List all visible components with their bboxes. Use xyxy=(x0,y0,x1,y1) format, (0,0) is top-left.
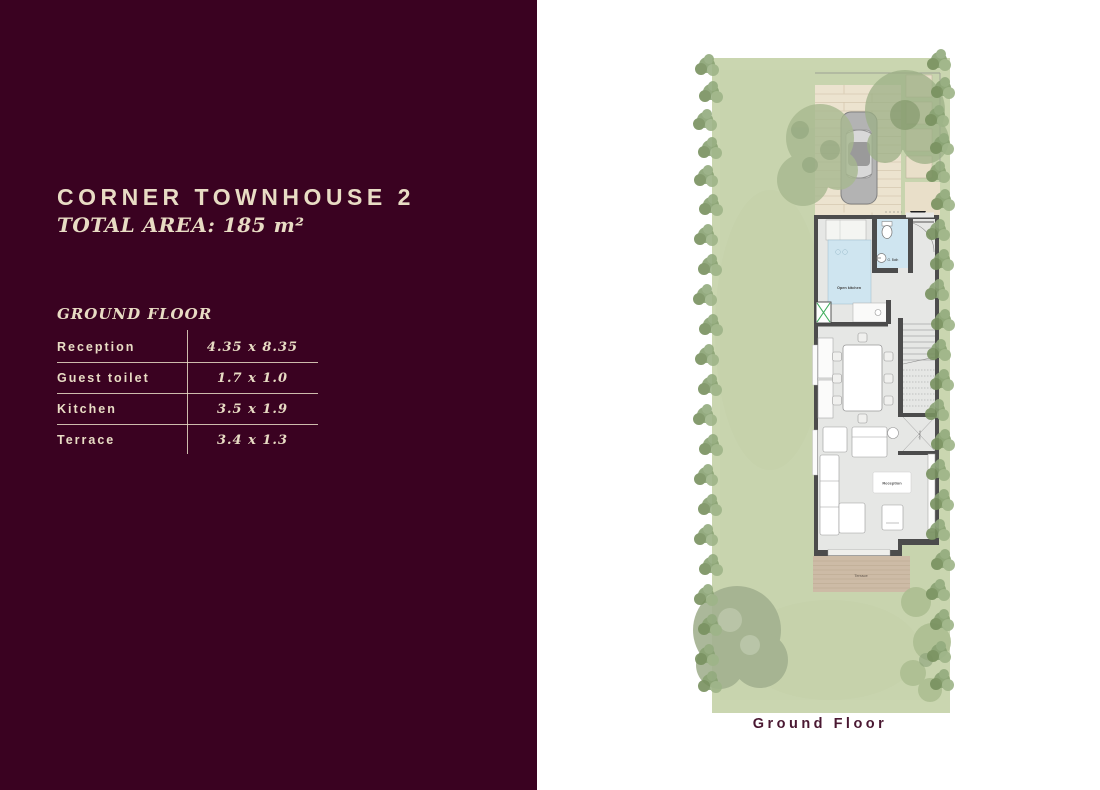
table-divider xyxy=(187,330,188,454)
floor-plan: G. Bath Open kitchen xyxy=(680,30,960,770)
room-label: Guest toilet xyxy=(57,371,187,385)
armchair xyxy=(823,427,847,452)
terrace-deck: Terrace xyxy=(813,556,910,592)
window xyxy=(813,430,818,475)
reception-label: Reception xyxy=(882,481,902,486)
window xyxy=(813,345,818,385)
plan-caption: Ground Floor xyxy=(680,716,960,732)
storage-label: Storage xyxy=(918,430,922,440)
brochure-page: CORNER TOWNHOUSE 2 TOTAL AREA: 185 m² GR… xyxy=(0,0,1100,790)
guest-bath-label: G. Bath xyxy=(888,258,899,262)
l-sofa xyxy=(820,455,839,535)
room-dims: 1.7 x 1.0 xyxy=(187,371,318,386)
unit-title: CORNER TOWNHOUSE 2 xyxy=(57,184,415,211)
terrace-label: Terrace xyxy=(854,573,868,578)
room-dims: 3.4 x 1.3 xyxy=(187,433,318,448)
room-dims: 4.35 x 8.35 xyxy=(187,340,318,355)
room-label: Kitchen xyxy=(57,402,187,416)
side-table xyxy=(888,428,899,439)
guest-toilet-room: G. Bath xyxy=(872,219,913,273)
dining-table xyxy=(843,345,882,411)
room-label: Reception xyxy=(57,340,187,354)
toilet-icon xyxy=(882,226,892,239)
dimensions-table: Reception 4.35 x 8.35 Guest toilet 1.7 x… xyxy=(57,332,318,455)
floor-heading: GROUND FLOOR xyxy=(57,305,212,323)
sofa xyxy=(852,427,887,457)
floor-plan-svg: G. Bath Open kitchen xyxy=(680,30,960,730)
lounge-chair xyxy=(882,505,903,530)
dining-area xyxy=(818,333,893,423)
terrace-door xyxy=(828,550,890,556)
left-info-panel: CORNER TOWNHOUSE 2 TOTAL AREA: 185 m² GR… xyxy=(0,0,537,790)
room-dims: 3.5 x 1.9 xyxy=(187,402,318,417)
entrance-opening xyxy=(906,213,934,218)
room-label: Terrace xyxy=(57,433,187,447)
kitchen-label: Open kitchen xyxy=(837,286,862,290)
total-area: TOTAL AREA: 185 m² xyxy=(57,213,305,237)
